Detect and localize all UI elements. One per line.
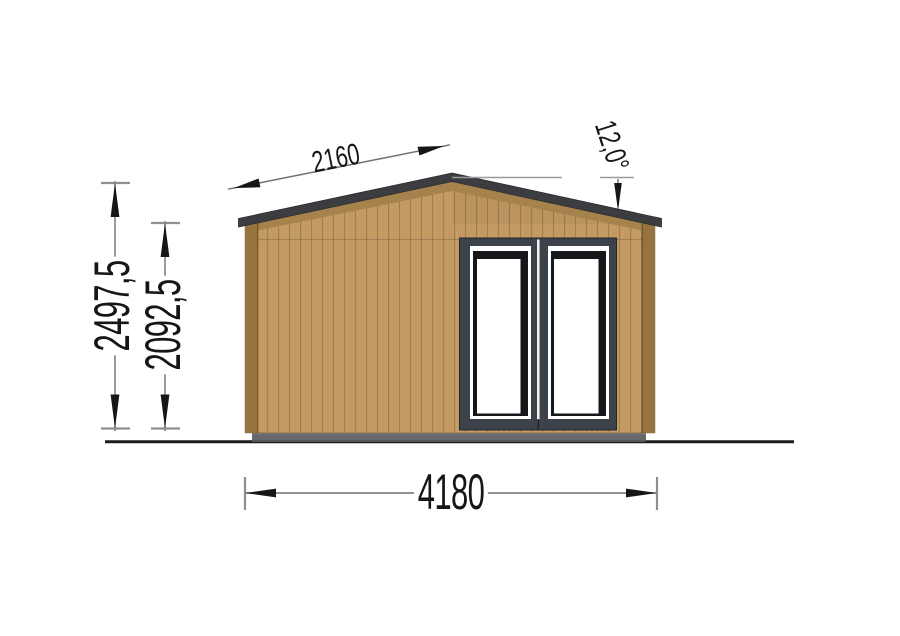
door-left-panel [470,246,531,419]
arrowhead [234,179,260,189]
overall-width-label: 4180 [414,467,488,517]
arrowhead [614,183,622,211]
door-right-glass [554,259,599,414]
left-trim-edge [257,218,258,433]
arrowhead [161,223,170,257]
arrowhead [111,395,120,429]
door-left-glass [477,259,521,414]
overall-height-label: 2497,5 [87,257,137,356]
foundation-base [252,433,646,443]
arrowhead [245,489,276,498]
arrowhead [626,489,657,498]
wall-height-label: 2092,5 [138,276,188,375]
right-corner-trim [642,218,655,433]
arrowhead [111,183,120,217]
arrowhead [161,395,170,429]
arrowhead [418,146,444,156]
cabin-elevation-drawing: 2497,5 2092,5 4180 2160 12,0° [0,0,900,636]
door-divider [537,240,540,420]
door-unit [460,238,617,430]
right-trim-edge [642,218,643,433]
left-corner-trim [245,218,258,433]
door-right-panel [548,246,609,419]
